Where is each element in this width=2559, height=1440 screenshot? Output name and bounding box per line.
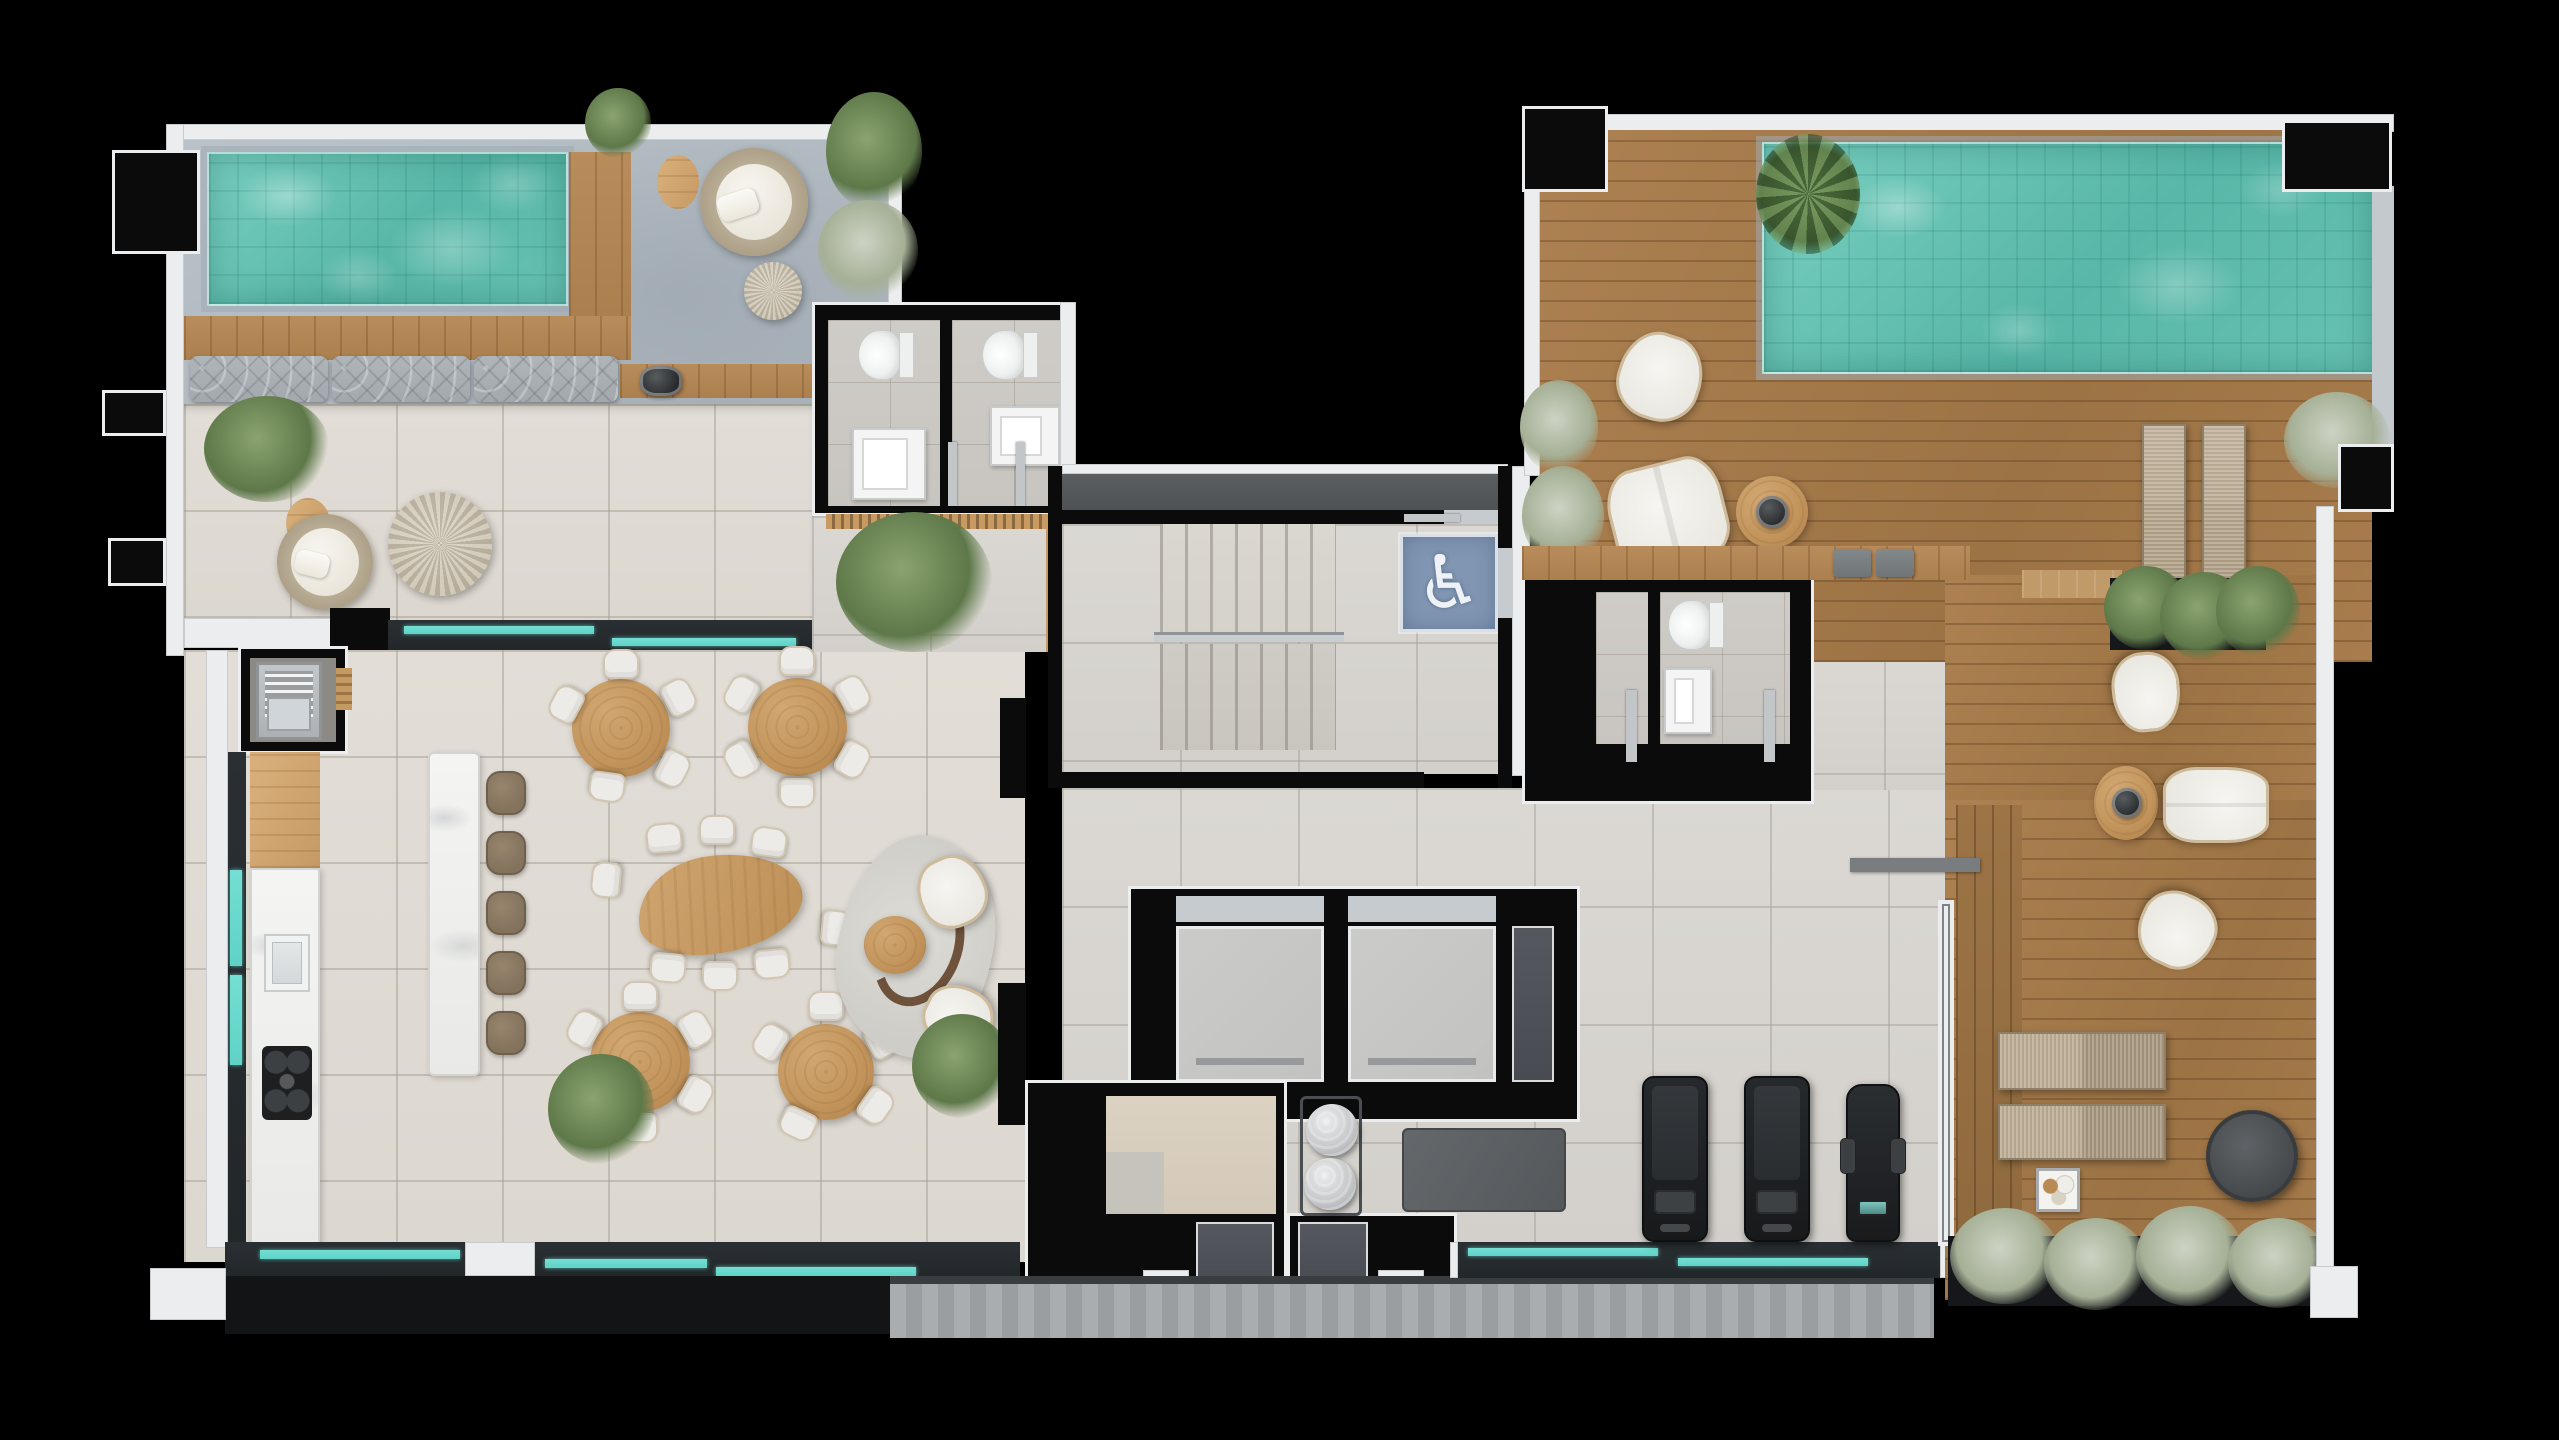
terrace-plant xyxy=(826,92,922,210)
elevator-handrail xyxy=(1368,1058,1476,1065)
bathroom-vanity xyxy=(852,428,926,500)
storage-floor-patch xyxy=(1106,1152,1164,1214)
toilet xyxy=(982,330,1038,380)
toilet xyxy=(858,330,914,380)
stair-north-wall xyxy=(1062,510,1444,524)
glass-panel xyxy=(1468,1248,1658,1256)
exercise-bike xyxy=(1846,1084,1900,1242)
dining-chair xyxy=(589,861,622,899)
structural-pier xyxy=(2282,120,2392,192)
dining-chair xyxy=(779,778,815,808)
coffee-table xyxy=(864,916,926,974)
terrace-plant xyxy=(585,88,651,158)
window-glass xyxy=(230,870,242,966)
corridor-north-edge xyxy=(1062,464,1508,474)
toilet xyxy=(1668,600,1724,650)
bathroom-door xyxy=(1626,690,1637,762)
bathroom-vanity xyxy=(1664,668,1712,734)
dining-chair xyxy=(603,649,639,679)
mullion xyxy=(1450,1242,1458,1278)
glass-panel xyxy=(260,1250,460,1259)
terrace-north-wall xyxy=(166,124,896,140)
sun-lounger xyxy=(2142,424,2186,586)
outdoor-sofa-segment xyxy=(474,356,618,402)
stair-east-wall xyxy=(1498,466,1512,548)
structural-pier xyxy=(102,390,166,436)
dining-chair xyxy=(699,815,735,845)
stair-flight-upper xyxy=(1160,524,1336,636)
window-glass xyxy=(230,975,242,1065)
planter-shrub xyxy=(2044,1218,2148,1310)
dining-chair xyxy=(587,770,627,805)
structural-pier xyxy=(1522,106,1608,192)
bench-cushion xyxy=(1876,549,1914,577)
corner-pier xyxy=(150,1268,226,1320)
dining-chair xyxy=(645,821,683,854)
outdoor-walkway xyxy=(890,1284,1934,1338)
bar-stool xyxy=(486,951,526,995)
stair-east-wall xyxy=(1498,618,1512,788)
structural-pier xyxy=(112,150,200,254)
double-sun-lounger xyxy=(1998,1032,2166,1090)
kitchen-cabinet xyxy=(250,752,320,868)
terrace-pouf xyxy=(744,262,802,320)
monstera-plant xyxy=(2216,566,2300,656)
table-tray xyxy=(2112,788,2142,818)
agave-plant xyxy=(1756,134,1860,254)
bench-cushion xyxy=(1833,549,1871,577)
wood-slat-accent xyxy=(336,668,352,710)
glass-panel xyxy=(545,1259,707,1268)
outdoor-sofa-segment xyxy=(332,356,470,402)
gym-mat xyxy=(1402,1128,1566,1212)
lounge-plant xyxy=(204,396,330,502)
stair-west-wall xyxy=(1048,466,1062,788)
grill-station xyxy=(256,662,322,740)
double-sun-lounger xyxy=(1998,1104,2166,1160)
dining-table xyxy=(748,678,847,776)
lounge-plant xyxy=(912,1014,1012,1118)
wall-pier xyxy=(465,1242,535,1276)
pool-deck-south-strip xyxy=(184,316,631,360)
deck-loveseat xyxy=(2163,767,2269,843)
elevator-door-sill xyxy=(1348,896,1496,922)
stair-flight-lower xyxy=(1160,644,1336,750)
dining-east-wall xyxy=(1000,698,1026,798)
accessible-floor-sign: ♿ xyxy=(1400,534,1498,632)
dining-chair xyxy=(622,981,658,1011)
dining-chair xyxy=(702,961,738,991)
round-daybed xyxy=(2206,1110,2298,1202)
glass-panel xyxy=(612,638,796,646)
kitchen-sink xyxy=(264,934,310,992)
structural-pier xyxy=(2338,444,2394,512)
dining-chair xyxy=(779,646,815,676)
partition-wall xyxy=(184,618,334,648)
dining-table xyxy=(572,679,670,777)
elevator-door-sill xyxy=(1176,896,1324,922)
treadmill xyxy=(1642,1076,1708,1242)
dining-chair xyxy=(749,825,789,860)
glass-panel xyxy=(716,1267,916,1276)
bar-stool xyxy=(486,771,526,815)
exercise-ball xyxy=(1304,1158,1356,1210)
dining-plant xyxy=(548,1054,654,1164)
corner-pier xyxy=(2310,1266,2358,1318)
elevator-handrail xyxy=(1196,1058,1304,1065)
tv-console xyxy=(1850,858,1980,872)
deck-tray-table xyxy=(2036,1168,2080,1212)
bathroom-door xyxy=(1016,442,1025,506)
bar-stool xyxy=(486,1011,526,1055)
treadmill xyxy=(1744,1076,1810,1242)
stair-south-wall xyxy=(1062,772,1424,788)
terrace-plant xyxy=(818,200,918,300)
bar-island xyxy=(428,752,480,1076)
structural-pier xyxy=(108,538,166,586)
bench-tray xyxy=(640,366,682,396)
dining-chair xyxy=(808,991,844,1021)
sun-lounger xyxy=(2202,424,2246,586)
bathroom-door xyxy=(1764,690,1775,762)
exercise-ball xyxy=(1306,1104,1358,1156)
wheelchair-icon: ♿ xyxy=(1416,546,1482,620)
dining-chair xyxy=(649,951,687,984)
dining-chair xyxy=(753,947,791,980)
bathroom-door xyxy=(948,442,957,506)
stair-landing-rail xyxy=(1154,632,1344,642)
service-shaft xyxy=(1512,926,1554,1082)
dining-east-wall xyxy=(998,983,1026,1125)
woven-pouf xyxy=(388,492,492,596)
corridor-door xyxy=(1404,514,1460,522)
gym-glass-wall xyxy=(1938,900,1954,1246)
glass-panel xyxy=(404,626,594,634)
side-table xyxy=(657,155,699,209)
table-tray xyxy=(1756,496,1788,528)
west-wall-lower xyxy=(206,650,228,1248)
pool-deck-east-strip xyxy=(569,152,631,316)
outdoor-sofa-segment xyxy=(190,356,328,402)
patio-plant xyxy=(836,512,992,652)
shower-room-floor xyxy=(1596,592,1648,744)
facade-base xyxy=(225,1276,890,1334)
glass-panel xyxy=(1678,1258,1868,1266)
planter-shrub xyxy=(1950,1208,2060,1304)
deck-door-sill xyxy=(1498,548,1512,618)
floor-plan: ♿ xyxy=(0,0,2559,1440)
right-east-wall xyxy=(2316,506,2334,1272)
service-corridor xyxy=(1062,474,1508,512)
bar-stool xyxy=(486,891,526,935)
bar-stool xyxy=(486,831,526,875)
deck-shrub xyxy=(1520,380,1598,474)
cooktop xyxy=(262,1046,312,1120)
bathroom-vanity xyxy=(990,406,1060,466)
left-pool xyxy=(207,152,568,306)
